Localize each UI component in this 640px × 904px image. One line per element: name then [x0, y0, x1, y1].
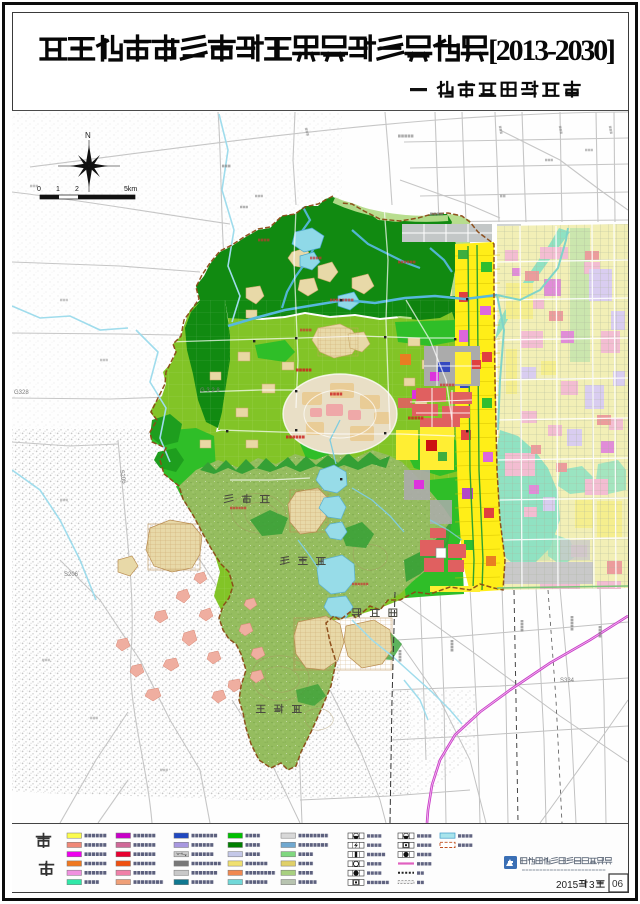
- svg-text:06: 06: [612, 879, 624, 890]
- svg-text:2: 2: [75, 186, 79, 193]
- svg-text:G328: G328: [14, 390, 29, 396]
- svg-text:2015: 2015: [556, 880, 579, 891]
- svg-text:3: 3: [589, 880, 595, 891]
- svg-text:N: N: [85, 131, 91, 140]
- svg-text:S206: S206: [64, 572, 79, 578]
- svg-text:0: 0: [37, 186, 41, 193]
- svg-text:G 3 2 8: G 3 2 8: [200, 388, 220, 394]
- svg-text:1: 1: [56, 186, 60, 193]
- svg-text:[2013-2030]: [2013-2030]: [488, 34, 616, 67]
- svg-text:S334: S334: [560, 678, 575, 684]
- svg-text:5km: 5km: [124, 186, 137, 193]
